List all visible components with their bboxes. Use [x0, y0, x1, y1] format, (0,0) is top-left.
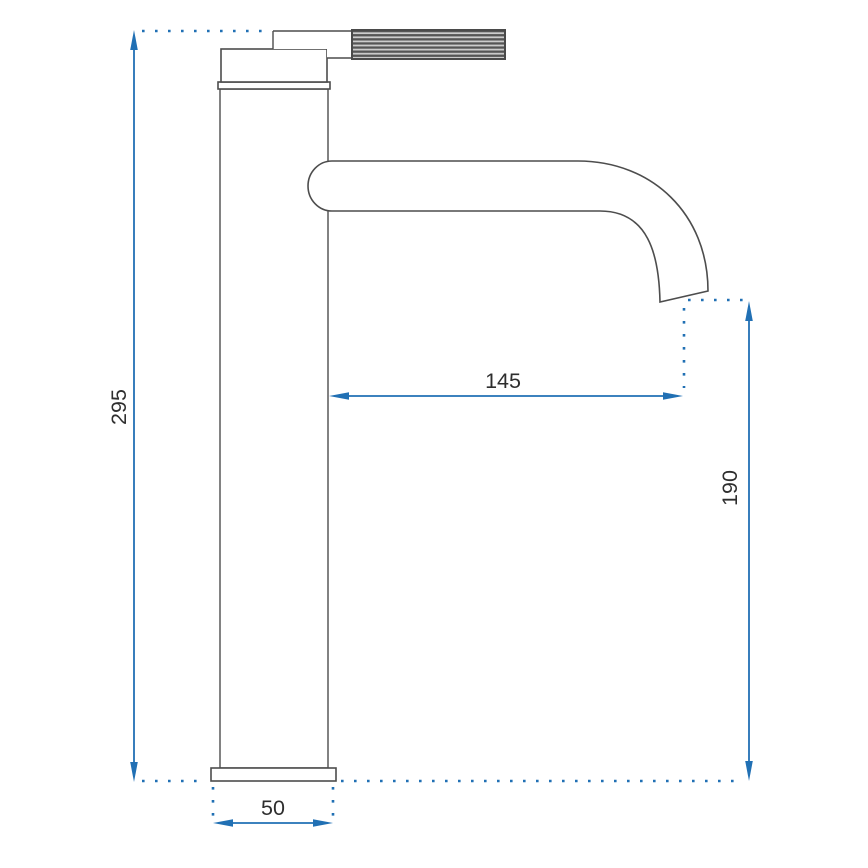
drawing-canvas: 295 145 190 50: [0, 0, 868, 868]
spout: [308, 161, 708, 302]
arrowhead-left-icon: [329, 392, 349, 399]
arrowhead-up-icon: [130, 30, 138, 50]
arrowhead-down-icon: [745, 761, 753, 781]
faucet-outline: [218, 30, 708, 768]
arrowhead-down-icon: [130, 762, 138, 782]
dimension-base-width: 50: [213, 787, 333, 827]
arrowhead-right-icon: [313, 819, 333, 826]
base-plate: [211, 768, 336, 781]
lever-knurled-grip: [352, 30, 505, 59]
faucet-dimension-drawing: 295 145 190 50: [0, 0, 868, 868]
dimension-label: 50: [261, 796, 285, 820]
dimension-total-height: 295: [107, 30, 268, 782]
dimension-label: 190: [718, 470, 742, 506]
cartridge-cap: [221, 49, 327, 82]
dimension-label: 145: [485, 369, 521, 393]
arrowhead-up-icon: [745, 301, 753, 321]
column-collar-band: [218, 82, 330, 89]
dimension-label: 295: [107, 389, 131, 425]
arrowhead-left-icon: [213, 819, 233, 826]
dimension-spout-reach: 145: [329, 308, 684, 400]
arrowhead-right-icon: [663, 392, 683, 399]
dimension-spout-outlet-height: 190: [688, 300, 753, 781]
